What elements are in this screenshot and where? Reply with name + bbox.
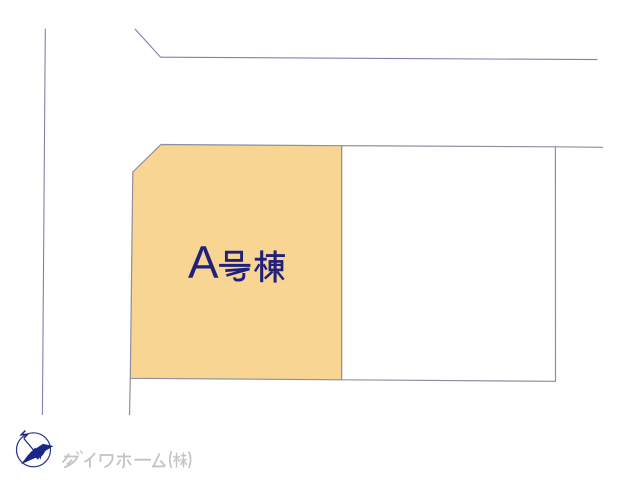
svg-text:A: A <box>188 237 219 288</box>
